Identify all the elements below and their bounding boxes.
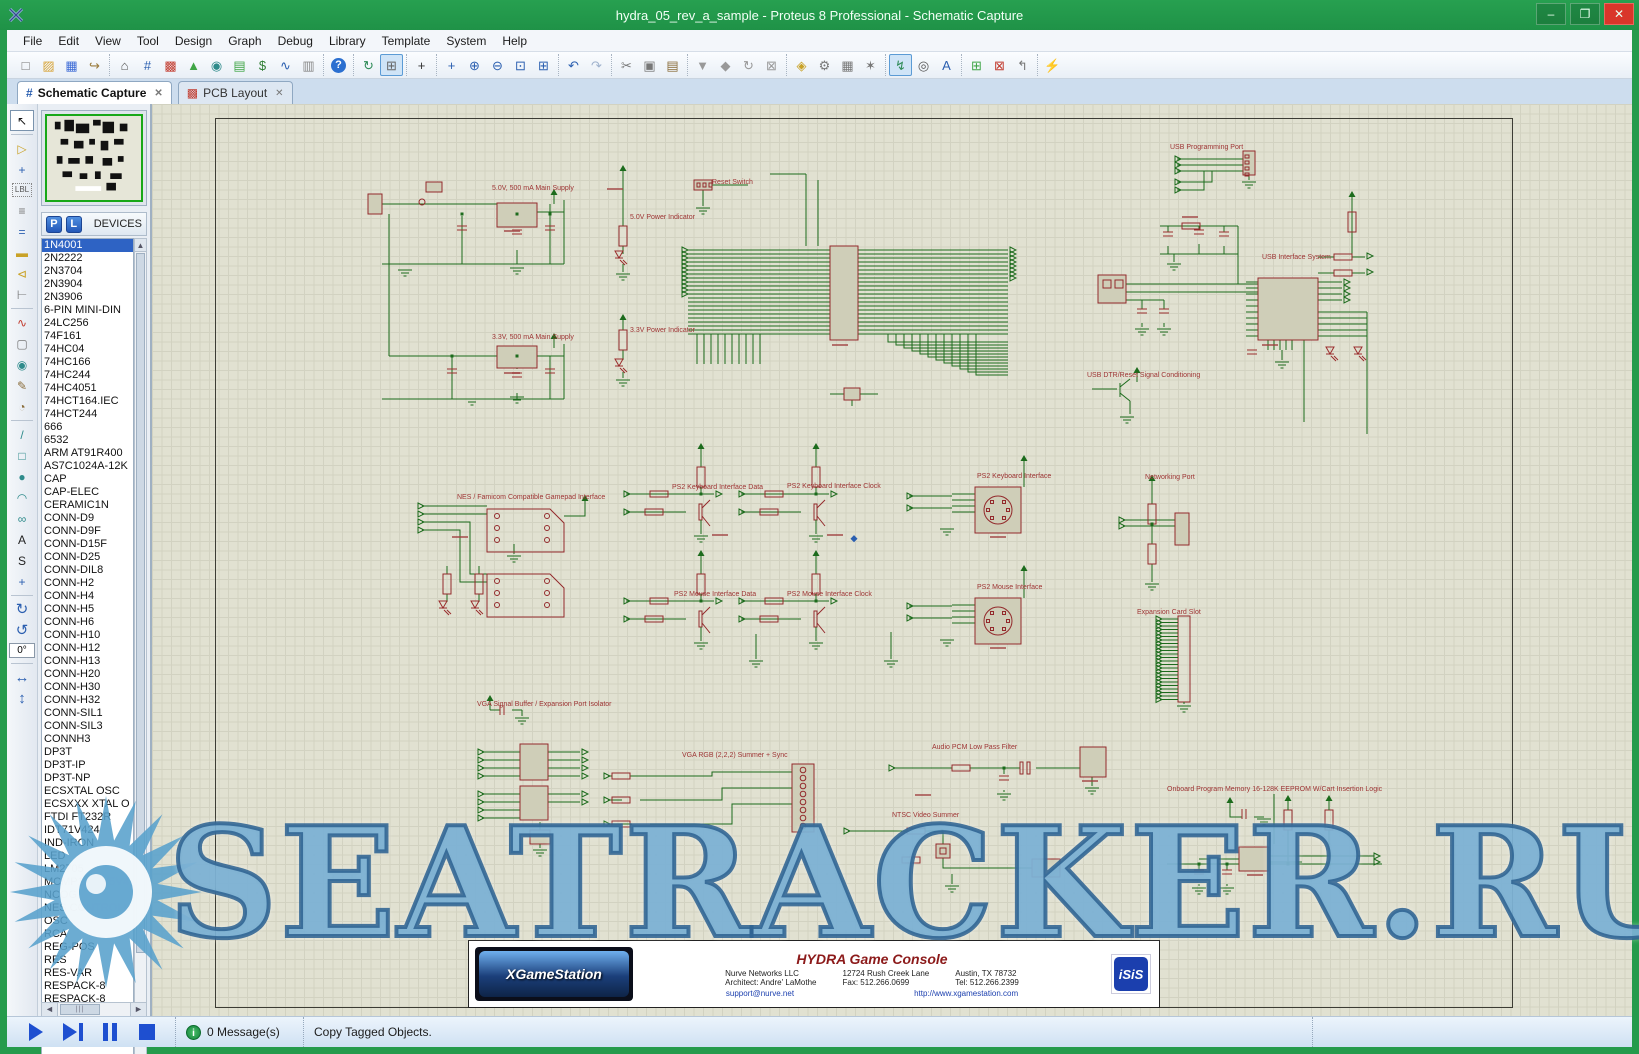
block-delete-icon[interactable]: ⊠ <box>760 54 783 76</box>
device-item[interactable]: ARM AT91R400 <box>42 447 133 460</box>
device-item[interactable]: 666 <box>42 421 133 434</box>
design-title: HYDRA Game Console <box>633 951 1111 967</box>
component-mode[interactable]: ▷ <box>10 138 34 159</box>
design-explorer-icon[interactable]: ▥ <box>297 54 320 76</box>
new-project-icon[interactable]: □ <box>14 54 37 76</box>
path-2d-mode[interactable]: ∞ <box>10 508 34 529</box>
device-item[interactable]: LED <box>42 850 133 863</box>
new-sheet-icon[interactable]: ⊞ <box>965 54 988 76</box>
buses-mode[interactable]: = <box>10 221 34 242</box>
website-url: http://www.xgamestation.com <box>914 989 1018 998</box>
undo-icon[interactable]: ↶ <box>562 54 585 76</box>
simulation-icon[interactable]: ∿ <box>274 54 297 76</box>
schematic-section-label: USB DTR/Reset Signal Conditioning <box>1087 372 1200 379</box>
home-icon[interactable]: ⌂ <box>113 54 136 76</box>
exit-to-parent-icon[interactable]: ↰ <box>1011 54 1034 76</box>
arc-2d-mode[interactable]: ◠ <box>10 487 34 508</box>
tab-schematic-capture[interactable]: # Schematic Capture ✕ <box>17 81 172 104</box>
menu-system[interactable]: System <box>438 32 494 50</box>
schematic-section-label: PS2 Mouse Interface <box>977 584 1042 591</box>
pick-parts-icon[interactable]: ◈ <box>790 54 813 76</box>
device-item[interactable]: 2N3904 <box>42 278 133 291</box>
menu-help[interactable]: Help <box>494 32 535 50</box>
rotation-angle-field[interactable]: 0° <box>9 643 35 658</box>
proteus-window: hydra_05_rev_a_sample - Proteus 8 Profes… <box>0 0 1639 1054</box>
make-device-icon[interactable]: ⚙ <box>813 54 836 76</box>
menu-design[interactable]: Design <box>167 32 220 50</box>
device-item[interactable]: 6-PIN MINI-DIN <box>42 304 133 317</box>
junction-dot-mode[interactable]: + <box>10 159 34 180</box>
generator-mode[interactable]: ◉ <box>10 354 34 375</box>
cut-icon[interactable]: ✂ <box>615 54 638 76</box>
schematic-section-label: PS2 Keyboard Interface Data <box>672 484 763 491</box>
device-item[interactable]: CERAMIC1N <box>42 499 133 512</box>
schematic-section-label: PS2 Mouse Interface Clock <box>787 591 872 598</box>
schematic-canvas[interactable]: .w{stroke:#1c6b1c;fill:none;stroke-width… <box>152 104 1632 1016</box>
menu-file[interactable]: File <box>15 32 50 50</box>
text-2d-mode[interactable]: A <box>10 529 34 550</box>
menu-graph[interactable]: Graph <box>220 32 269 50</box>
device-item[interactable]: 2N2222 <box>42 252 133 265</box>
menu-debug[interactable]: Debug <box>270 32 321 50</box>
schematic-section-label: Networking Port <box>1145 474 1195 481</box>
device-item[interactable]: CONN-D25 <box>42 551 133 564</box>
device-item[interactable]: CONNH3 <box>42 733 133 746</box>
terminals-mode[interactable]: ⊲ <box>10 263 34 284</box>
schematic-section-label: VGA Signal Buffer / Expansion Port Isola… <box>477 701 612 708</box>
device-item[interactable]: CONN-D9 <box>42 512 133 525</box>
status-message: Copy Tagged Objects. <box>314 1025 432 1039</box>
wire-autorouter-icon[interactable]: ↯ <box>889 54 912 76</box>
library-button[interactable]: L <box>66 216 82 233</box>
open-project-icon[interactable]: ▨ <box>37 54 60 76</box>
close-tab-icon[interactable]: ✕ <box>275 88 283 99</box>
support-email: support@nurve.net <box>726 989 794 998</box>
device-item[interactable]: 74HC4051 <box>42 382 133 395</box>
side-panel: P L DEVICES 1N40012N22222N37042N39042N39… <box>38 104 152 1016</box>
minimize-button[interactable]: – <box>1536 3 1566 25</box>
flip-vertical-button[interactable]: ↕ <box>10 688 34 709</box>
zoom-in-icon[interactable]: ⊕ <box>463 54 486 76</box>
device-item[interactable]: CONN-H10 <box>42 629 133 642</box>
pause-button[interactable] <box>95 1021 124 1043</box>
devices-list: 1N40012N22222N37042N39042N39066-PIN MINI… <box>41 238 134 1054</box>
subcircuit-mode[interactable]: ▬ <box>10 242 34 263</box>
device-item[interactable]: DP3T-NP <box>42 772 133 785</box>
pan-icon[interactable]: + <box>440 54 463 76</box>
device-item[interactable]: RES-VAR <box>42 967 133 980</box>
device-item[interactable]: NCOG <box>42 889 133 902</box>
status-bar: i 0 Message(s) Copy Tagged Objects. <box>7 1016 1632 1047</box>
device-item[interactable]: CONN-SIL1 <box>42 707 133 720</box>
message-count: 0 Message(s) <box>207 1025 280 1039</box>
device-item[interactable]: 74F161 <box>42 330 133 343</box>
block-copy-icon[interactable]: ▼ <box>691 54 714 76</box>
help-icon[interactable]: ? <box>327 54 350 76</box>
block-rotate-icon[interactable]: ↻ <box>737 54 760 76</box>
simulation-controls <box>7 1017 175 1047</box>
device-item[interactable]: CONN-H32 <box>42 694 133 707</box>
device-item[interactable]: IDT71V424 <box>42 824 133 837</box>
remove-sheet-icon[interactable]: ⊠ <box>988 54 1011 76</box>
menu-edit[interactable]: Edit <box>50 32 87 50</box>
schematic-section-label: Expansion Card Slot <box>1137 609 1201 616</box>
graph-mode[interactable]: ∿ <box>10 312 34 333</box>
bom-icon[interactable]: ▤ <box>228 54 251 76</box>
status-right-segment <box>1312 1017 1632 1047</box>
bom-cost-icon[interactable]: $ <box>251 54 274 76</box>
step-button[interactable] <box>58 1021 87 1043</box>
message-counter: i 0 Message(s) <box>175 1017 303 1047</box>
device-item[interactable]: OSC <box>42 915 133 928</box>
device-item[interactable]: RCA <box>42 928 133 941</box>
symbol-2d-mode[interactable]: S <box>10 550 34 571</box>
schematic-section-label: USB Interface System <box>1262 254 1331 261</box>
device-item[interactable]: 1N4001 <box>42 239 133 252</box>
close-tab-icon[interactable]: ✕ <box>154 88 162 99</box>
schematic-section-label: 3.3V, 500 mA Main Supply <box>492 334 574 341</box>
schematic-section-label: PS2 Keyboard Interface Clock <box>787 483 881 490</box>
info-icon: i <box>186 1025 201 1040</box>
device-item[interactable]: 74HC244 <box>42 369 133 382</box>
device-item[interactable]: 74HCT164.IEC <box>42 395 133 408</box>
marker-2d-mode[interactable]: + <box>10 571 34 592</box>
device-item[interactable]: CONN-SIL3 <box>42 720 133 733</box>
pcb-tab-icon: ▩ <box>187 86 198 100</box>
redo-icon[interactable]: ↷ <box>585 54 608 76</box>
packaging-tool-icon[interactable]: ▦ <box>836 54 859 76</box>
rotate-cw-button[interactable]: ↻ <box>10 599 34 620</box>
device-item[interactable]: CONN-H4 <box>42 590 133 603</box>
scrollbar-thumb[interactable]: ||| <box>60 1004 100 1015</box>
device-item[interactable]: DP3T <box>42 746 133 759</box>
paste-icon[interactable]: ▤ <box>661 54 684 76</box>
import-project-icon[interactable]: ↪ <box>83 54 106 76</box>
3d-visualizer-icon[interactable]: ▲ <box>182 54 205 76</box>
schematic-drawing: .w{stroke:#1c6b1c;fill:none;stroke-width… <box>152 104 1632 1016</box>
device-item[interactable]: NES CONTROLL <box>42 902 133 915</box>
selection-mode[interactable]: ↖ <box>10 110 34 131</box>
menu-tool[interactable]: Tool <box>129 32 167 50</box>
device-item[interactable]: 74HC166 <box>42 356 133 369</box>
device-item[interactable]: CONN-H6 <box>42 616 133 629</box>
main-toolbar: □▨▦↪⌂#▩▲◉▤$∿▥?↻⊞++⊕⊖⊡⊞↶↷✂▣▤▼◆↻⊠◈⚙▦✶↯◎A⊞⊠… <box>7 52 1632 79</box>
device-item[interactable]: 74HC04 <box>42 343 133 356</box>
device-item[interactable]: 24LC256 <box>42 317 133 330</box>
window-title: hydra_05_rev_a_sample - Proteus 8 Profes… <box>0 8 1639 23</box>
schematic-section-label: VGA RGB (2,2,2) Summer + Sync <box>682 752 788 759</box>
voltage-probe-mode[interactable]: ✎ <box>10 375 34 396</box>
tab-bar: # Schematic Capture ✕ ▩ PCB Layout ✕ <box>7 79 1632 104</box>
tab-label: PCB Layout <box>203 86 267 100</box>
play-button[interactable] <box>21 1021 50 1043</box>
device-item[interactable]: DP3T-IP <box>42 759 133 772</box>
city: Austin, TX 78732 <box>955 969 1019 978</box>
title-bar: hydra_05_rev_a_sample - Proteus 8 Profes… <box>0 0 1639 30</box>
schematic-section-label: NES / Famicom Compatible Gamepad Interfa… <box>457 494 605 501</box>
close-button[interactable]: ✕ <box>1604 3 1634 25</box>
schematic-section-label: USB Programming Port <box>1170 144 1243 151</box>
menu-template[interactable]: Template <box>374 32 439 50</box>
device-item[interactable]: LM2705 <box>42 863 133 876</box>
schematic-section-label: Audio PCM Low Pass Filter <box>932 744 1017 751</box>
tab-label: Schematic Capture <box>38 86 147 100</box>
architect: Architect: Andre' LaMothe <box>725 978 816 987</box>
scroll-up-icon[interactable]: ▲ <box>135 239 146 252</box>
rotate-ccw-button[interactable]: ↺ <box>10 620 34 641</box>
flip-horizontal-button[interactable]: ↔ <box>10 667 34 688</box>
overview-minimap[interactable] <box>45 114 143 202</box>
device-item[interactable]: IND-IRON <box>42 837 133 850</box>
gerber-viewer-icon[interactable]: ◉ <box>205 54 228 76</box>
copy-icon[interactable]: ▣ <box>638 54 661 76</box>
circle-2d-mode[interactable]: ● <box>10 466 34 487</box>
device-item[interactable]: CONN-H5 <box>42 603 133 616</box>
device-item[interactable]: CONN-D15F <box>42 538 133 551</box>
scroll-left-icon[interactable]: ◄ <box>42 1003 58 1016</box>
device-item[interactable]: MCMP1206Y5V4 <box>42 876 133 889</box>
device-item[interactable]: ECSXXX XTAL O <box>42 798 133 811</box>
devices-horizontal-scrollbar[interactable]: ◄ ||| ► <box>41 1002 147 1017</box>
device-item[interactable]: 6532 <box>42 434 133 447</box>
scrollbar-thumb[interactable] <box>136 253 145 953</box>
company-name: Nurve Networks LLC <box>725 969 816 978</box>
device-item[interactable]: CONN-H30 <box>42 681 133 694</box>
menu-library[interactable]: Library <box>321 32 374 50</box>
schematic-section-label: PS2 Mouse Interface Data <box>674 591 756 598</box>
device-item[interactable]: ECSXTAL OSC <box>42 785 133 798</box>
box-2d-mode[interactable]: □ <box>10 445 34 466</box>
tab-pcb-layout[interactable]: ▩ PCB Layout ✕ <box>178 81 293 104</box>
address-line: 12724 Rush Creek Lane <box>843 969 930 978</box>
tel: Tel: 512.266.2399 <box>955 978 1019 987</box>
device-item[interactable]: CAP-ELEC <box>42 486 133 499</box>
device-item[interactable]: CONN-DIL8 <box>42 564 133 577</box>
zoom-area-icon[interactable]: ⊡ <box>509 54 532 76</box>
device-item[interactable]: 74HCT244 <box>42 408 133 421</box>
schematic-section-label: 3.3V Power Indicator <box>630 327 695 334</box>
wire-label-mode[interactable]: LBL <box>12 183 32 197</box>
device-item[interactable]: CONN-H20 <box>42 668 133 681</box>
device-item[interactable]: CONN-H13 <box>42 655 133 668</box>
device-item[interactable]: CONN-H2 <box>42 577 133 590</box>
schematic-section-label: NTSC Video Summer <box>892 812 959 819</box>
scroll-right-icon[interactable]: ► <box>130 1003 146 1016</box>
menu-bar: FileEditViewToolDesignGraphDebugLibraryT… <box>7 30 1632 52</box>
zoom-all-icon[interactable]: ⊞ <box>532 54 555 76</box>
property-assignment-icon[interactable]: A <box>935 54 958 76</box>
devices-vertical-scrollbar[interactable]: ▲ ▼ <box>134 238 147 1054</box>
schematic-tab-icon: # <box>26 86 33 100</box>
device-item[interactable]: 2N3906 <box>42 291 133 304</box>
schematic-section-label: PS2 Keyboard Interface <box>977 473 1051 480</box>
stop-button[interactable] <box>132 1021 161 1043</box>
tape-recorder-mode[interactable]: ▢ <box>10 333 34 354</box>
origin-icon[interactable]: + <box>410 54 433 76</box>
maximize-button[interactable]: ❐ <box>1570 3 1600 25</box>
device-item[interactable]: RES <box>42 954 133 967</box>
zoom-out-icon[interactable]: ⊖ <box>486 54 509 76</box>
schematic-section-label: 5.0V Power Indicator <box>630 214 695 221</box>
decompose-icon[interactable]: ✶ <box>859 54 882 76</box>
redraw-icon[interactable]: ↻ <box>357 54 380 76</box>
device-item[interactable]: REG-POS <box>42 941 133 954</box>
device-item[interactable]: AS7C1024A-12K <box>42 460 133 473</box>
grid-toggle-icon[interactable]: ⊞ <box>380 54 403 76</box>
pick-devices-button[interactable]: P <box>46 216 62 233</box>
schematic-section-label: 5.0V, 500 mA Main Supply <box>492 185 574 192</box>
device-item[interactable]: RESPACK-8 <box>42 980 133 993</box>
devices-header: DEVICES <box>94 218 142 230</box>
menu-view[interactable]: View <box>87 32 129 50</box>
device-item[interactable]: CAP <box>42 473 133 486</box>
erc-icon[interactable]: ⚡ <box>1041 54 1064 76</box>
xgamestation-logo: XGameStation <box>475 947 633 1001</box>
schematic-section-label: Onboard Program Memory 16-128K EEPROM W/… <box>1167 786 1382 793</box>
device-item[interactable]: 2N3704 <box>42 265 133 278</box>
device-item[interactable]: CONN-D9F <box>42 525 133 538</box>
save-project-icon[interactable]: ▦ <box>60 54 83 76</box>
device-item[interactable]: CONN-H12 <box>42 642 133 655</box>
block-move-icon[interactable]: ◆ <box>714 54 737 76</box>
search-tag-icon[interactable]: ◎ <box>912 54 935 76</box>
status-message-segment: Copy Tagged Objects. <box>303 1017 1312 1047</box>
device-pins-mode[interactable]: ⊢ <box>10 284 34 305</box>
schematic-capture-icon[interactable]: # <box>136 54 159 76</box>
pcb-layout-icon[interactable]: ▩ <box>159 54 182 76</box>
schematic-section-label: Reset Switch <box>712 179 753 186</box>
mode-toolbar: ↖▷+LBL≡=▬⊲⊢∿▢◉✎◔/□●◠∞AS+↻↺0°↔↕ <box>7 104 38 1016</box>
device-item[interactable]: FTDI FT232R <box>42 811 133 824</box>
text-script-mode[interactable]: ≡ <box>10 200 34 221</box>
schematic-title-block: XGameStation HYDRA Game Console Nurve Ne… <box>468 940 1160 1008</box>
line-2d-mode[interactable]: / <box>10 424 34 445</box>
current-probe-mode[interactable]: ◔ <box>10 396 34 417</box>
isis-logo: iSiS <box>1111 954 1151 994</box>
fax: Fax: 512.266.0699 <box>843 978 930 987</box>
overview-panel <box>41 110 147 206</box>
